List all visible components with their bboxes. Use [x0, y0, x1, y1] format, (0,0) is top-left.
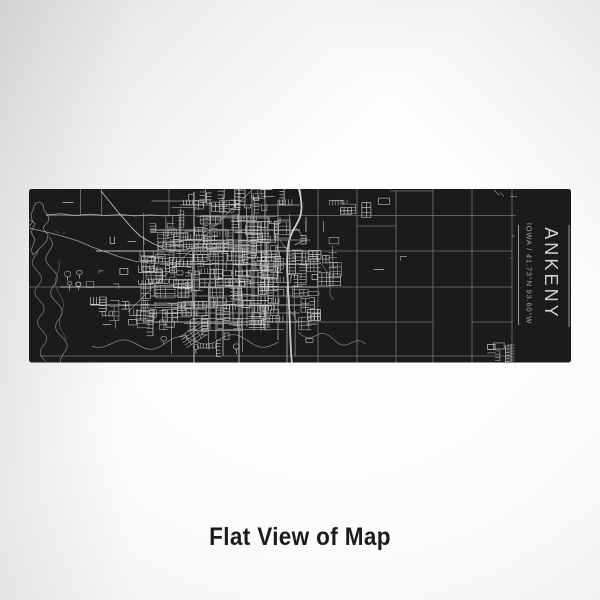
svg-text:ANKENY: ANKENY	[541, 227, 561, 320]
svg-text:IOWA / 41.73°N 93.60°W: IOWA / 41.73°N 93.60°W	[525, 223, 534, 324]
